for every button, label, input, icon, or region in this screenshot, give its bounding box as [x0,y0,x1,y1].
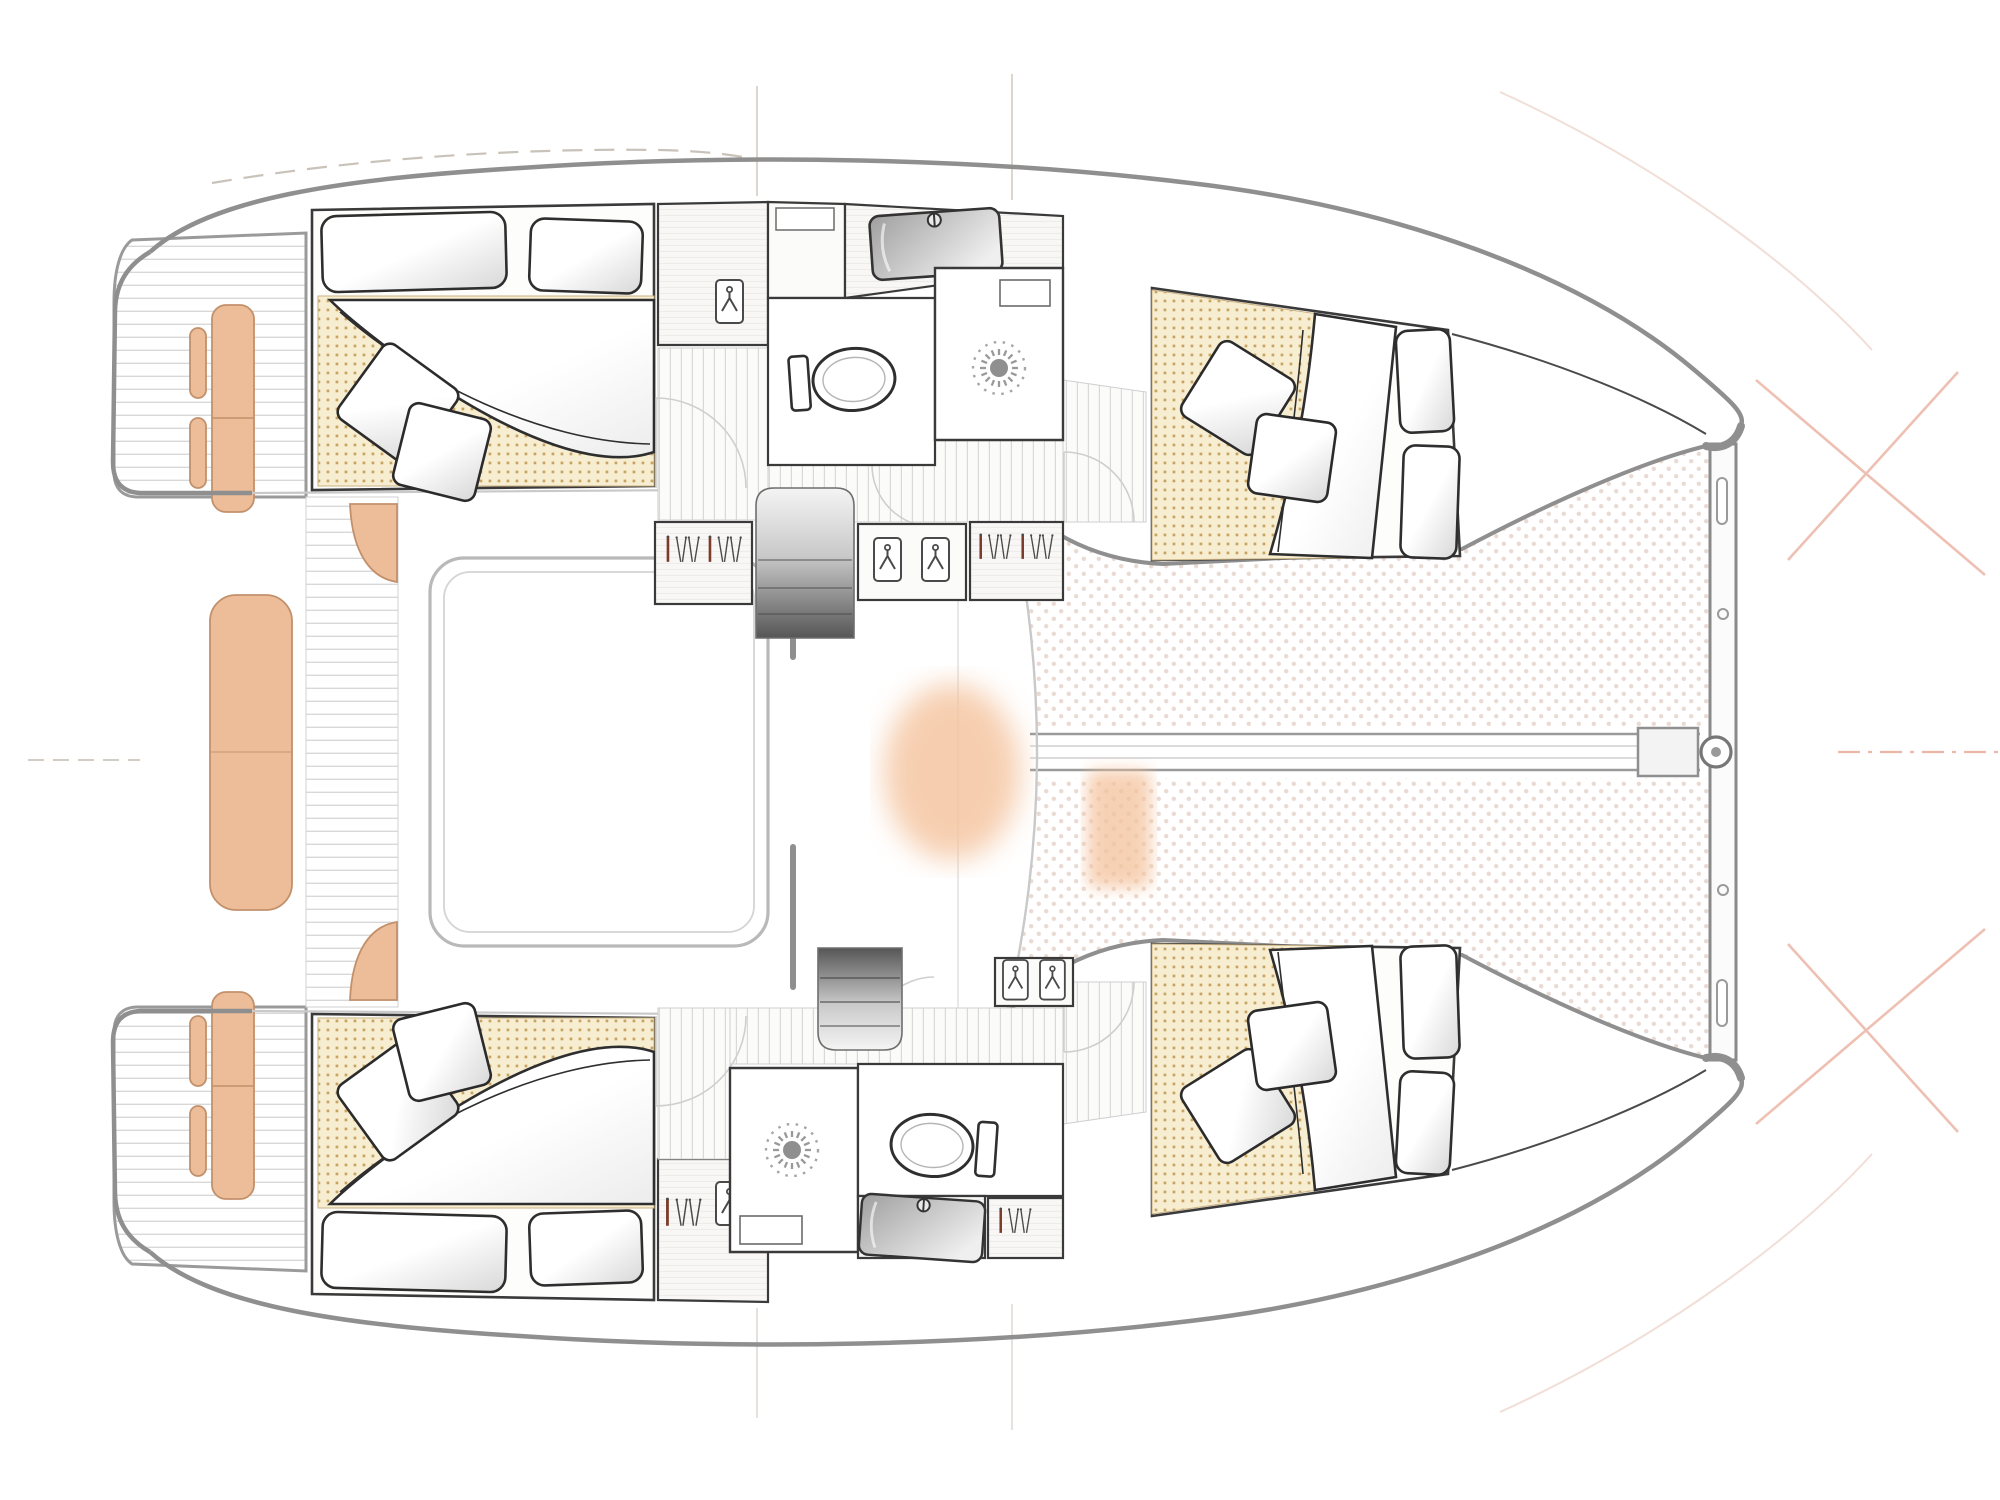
forestay-fitting-pin [1711,747,1721,757]
swim-platform-starboard [114,1007,306,1271]
scatter-pillow [1247,413,1337,503]
saloon-door-track [790,844,796,990]
bathroom-port [768,202,1063,465]
wardrobe-box [970,522,1063,600]
hanging-locker-icon [874,538,901,581]
transom-bench-cushion [212,992,254,1199]
bed-pillow [529,218,643,294]
bed-pillow [1395,1071,1454,1176]
bed-pillow [321,212,507,293]
hanging-locker-icon [716,280,743,323]
cockpit-seating-frame [430,558,768,946]
steps-icon [756,488,854,638]
scatter-pillow [1247,1001,1337,1091]
crossbeam-slot [1717,478,1727,524]
bow-guide-upper [1500,92,1872,350]
seat-pad [190,418,206,488]
cabin-starboard-aft [312,1001,654,1300]
swim-platform-port [114,233,306,497]
bow-guide-lower [1500,1154,1872,1412]
sheer-guide-dashed [212,150,748,183]
catamaran-floor-plan: Catamaran interior floor plan — top-down… [0,0,2000,1500]
wardrobe-box [658,202,768,345]
cabin-port-aft [312,204,654,503]
wardrobe-box [988,1198,1063,1258]
steps-icon [818,948,902,1050]
bathroom-starboard [730,1064,1063,1263]
shower-shelf [1000,280,1050,306]
bed-pillow [1400,945,1460,1059]
hanging-locker-icon [1040,960,1065,1000]
seat-pad [190,328,206,398]
crossbeam-slot [1717,980,1727,1026]
wardrobe-box [655,522,752,604]
bowsprit-block [1638,728,1698,776]
sink-icon [858,1193,985,1262]
deck-glow [1087,770,1151,888]
bed-pillow [529,1210,643,1286]
hanging-locker-icon [1003,960,1028,1000]
seat-pad [190,1106,206,1176]
seat-pad [190,1016,206,1086]
shower-shelf [740,1216,802,1244]
cabinet-detail [776,208,834,230]
bed-pillow [1395,329,1454,434]
deck-glow [884,684,1020,860]
hanging-locker-icon [922,538,949,581]
bed-pillow [1400,445,1460,559]
scatter-pillow [391,1001,493,1103]
bed-pillow [321,1212,507,1293]
cockpit-seating-frame-inner [444,572,754,932]
scatter-pillow [391,401,493,503]
floor-plan-canvas: Catamaran interior floor plan — top-down… [0,0,2000,1500]
transom-bench-cushion [212,305,254,512]
